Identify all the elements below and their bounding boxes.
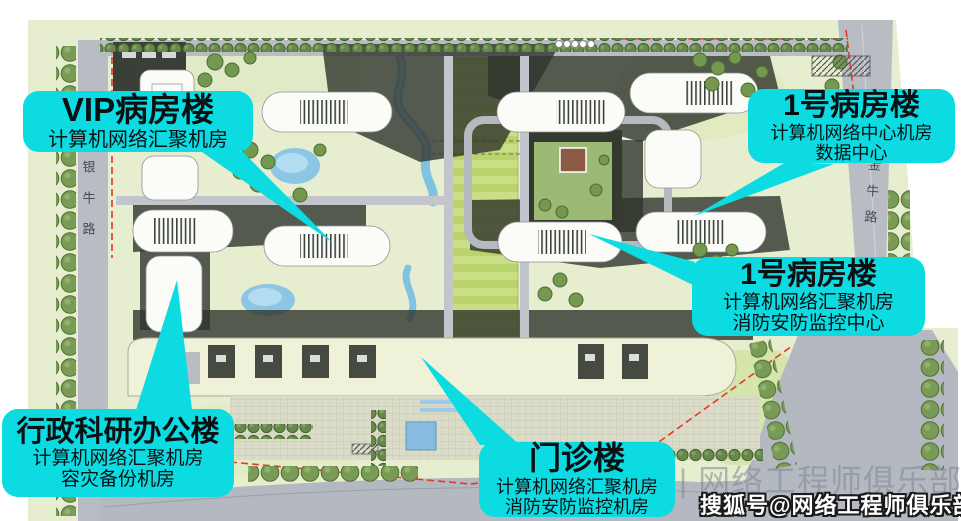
callout-line: 计算机网络汇聚机房 (48, 129, 228, 151)
left-road-label: 银牛路 (81, 160, 96, 253)
courtyard-block (524, 130, 622, 230)
callout-line: 计算机网络汇聚机房 (32, 448, 203, 469)
callout-ward1-top: 1号病房楼 计算机网络中心机房 数据中心 (748, 89, 955, 163)
callout-line: 计算机网络汇聚机房 (496, 477, 658, 497)
callout-title: 1号病房楼 (783, 89, 920, 123)
callout-title: 1号病房楼 (740, 258, 877, 292)
site-plan-figure: 银牛路 金牛路 公众号 | 网络工程师俱乐部 VIP病房楼 计算机网络汇聚机房 … (0, 0, 961, 521)
callout-line: 计算机网络中心机房 (771, 123, 933, 143)
callout-outpatient: 门诊楼 计算机网络汇聚机房 消防安防监控机房 (479, 442, 675, 517)
callout-line: 计算机网络汇聚机房 (723, 292, 894, 313)
watermark-sohu: 搜狐号@网络工程师俱乐部 (700, 488, 961, 520)
callout-ward1-mid: 1号病房楼 计算机网络汇聚机房 消防安防监控中心 (692, 257, 925, 336)
callout-line: 消防安防监控中心 (732, 313, 884, 334)
callout-vip-ward: VIP病房楼 计算机网络汇聚机房 (23, 91, 253, 152)
callout-line: 容灾备份机房 (61, 469, 175, 490)
callout-title: 门诊楼 (529, 441, 625, 477)
callout-admin-research: 行政科研办公楼 计算机网络汇聚机房 容灾备份机房 (2, 409, 234, 497)
callout-line: 数据中心 (816, 143, 888, 163)
callout-title: VIP病房楼 (62, 92, 214, 129)
callout-title: 行政科研办公楼 (16, 416, 219, 448)
callout-line: 消防安防监控机房 (505, 497, 649, 517)
